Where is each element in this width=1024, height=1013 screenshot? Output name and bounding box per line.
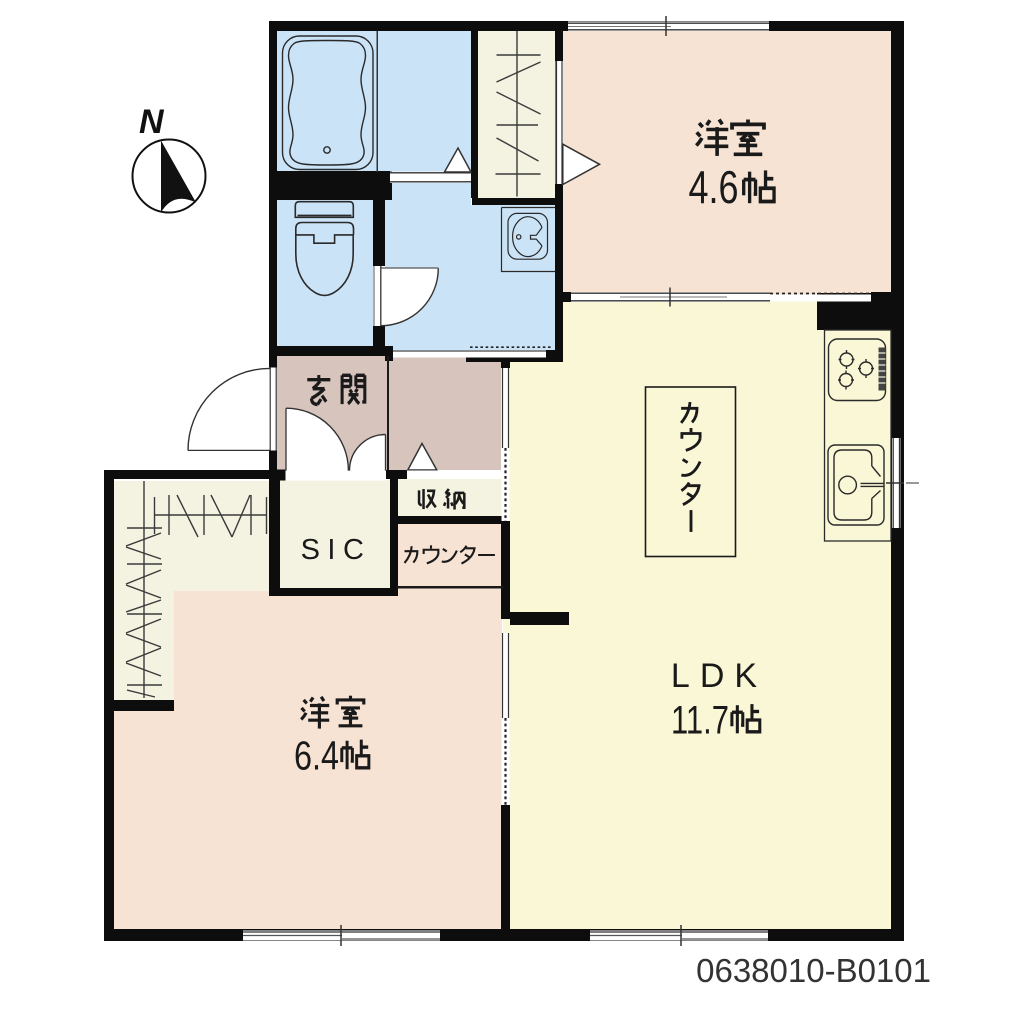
svg-text:11.7: 11.7 xyxy=(671,699,729,743)
svg-text:0638010-B0101: 0638010-B0101 xyxy=(696,952,931,989)
svg-text:LDK: LDK xyxy=(671,657,767,695)
svg-text:N: N xyxy=(139,103,165,141)
svg-text:4.6: 4.6 xyxy=(689,161,739,213)
svg-text:6.4: 6.4 xyxy=(294,733,339,779)
svg-text:SIC: SIC xyxy=(301,534,372,566)
